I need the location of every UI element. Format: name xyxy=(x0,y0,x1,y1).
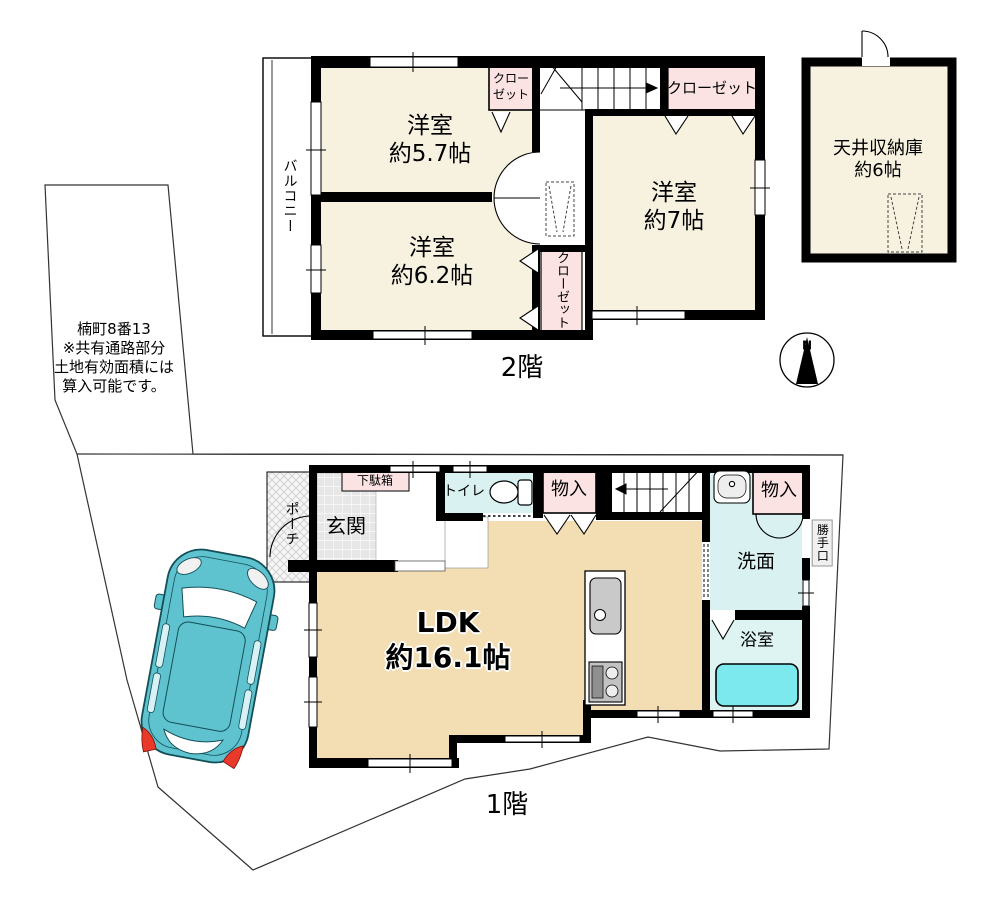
storage-left-box xyxy=(543,469,596,513)
toilet-fixture xyxy=(490,480,532,505)
room-7-floor xyxy=(592,114,758,312)
building-1f xyxy=(267,461,814,773)
bathtub xyxy=(716,664,798,706)
closet-5-7-box xyxy=(489,63,533,110)
storage-right-box xyxy=(753,469,804,514)
wash-basin xyxy=(714,471,750,503)
closet-7-box xyxy=(668,66,756,110)
kitchen-sink xyxy=(590,578,621,634)
floor-plan-canvas: バルコニー 洋室 約5.7帖 クロー ゼット 洋室 約6.2帖 クローゼット ク… xyxy=(0,0,1000,915)
plan-drawing-svg xyxy=(0,0,1000,915)
attic-storage xyxy=(806,31,952,258)
shoe-cabinet-box xyxy=(342,471,409,491)
building-2f xyxy=(263,31,952,345)
compass xyxy=(780,333,834,387)
closet-6-2-box xyxy=(541,251,582,331)
kitchen-counter xyxy=(585,571,625,705)
car xyxy=(128,542,288,771)
balcony xyxy=(263,58,313,336)
